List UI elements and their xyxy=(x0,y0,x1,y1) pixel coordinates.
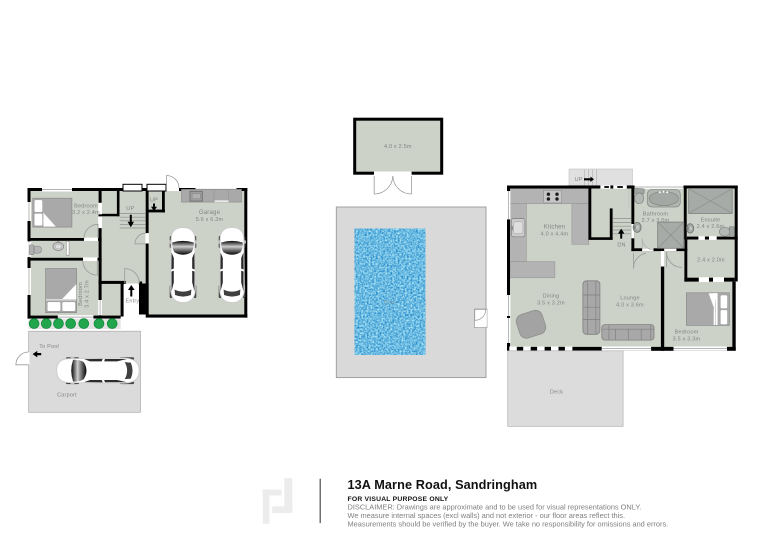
svg-text:Carport: Carport xyxy=(57,392,77,398)
svg-text:Garage: Garage xyxy=(199,210,221,216)
svg-text:Kitchen: Kitchen xyxy=(544,225,565,231)
svg-text:Lounge: Lounge xyxy=(620,296,640,302)
svg-text:UP: UP xyxy=(150,198,158,204)
svg-text:4.0 x 2.5m: 4.0 x 2.5m xyxy=(384,144,412,150)
svg-text:Bedroom: Bedroom xyxy=(78,282,84,306)
svg-text:Measurements should be verifie: Measurements should be verified by the b… xyxy=(348,520,669,529)
svg-text:Entry: Entry xyxy=(125,299,139,305)
svg-text:5.6 x 6.3m: 5.6 x 6.3m xyxy=(196,217,224,223)
svg-text:13A Marne Road, Sandringham: 13A Marne Road, Sandringham xyxy=(348,478,538,492)
svg-text:Bathroom: Bathroom xyxy=(643,212,669,218)
svg-text:Bedroom: Bedroom xyxy=(74,204,98,210)
svg-text:Pool: Pool xyxy=(384,300,396,306)
svg-text:Deck: Deck xyxy=(550,390,563,396)
svg-text:Ensuite: Ensuite xyxy=(701,218,721,224)
svg-text:Bedroom: Bedroom xyxy=(675,330,699,336)
svg-text:3.5 x 3.2m: 3.5 x 3.2m xyxy=(537,301,565,307)
svg-text:3.4 x 2.7m: 3.4 x 2.7m xyxy=(85,280,91,308)
svg-text:Dining: Dining xyxy=(543,294,560,300)
svg-text:To Pool: To Pool xyxy=(39,344,59,350)
svg-text:UP: UP xyxy=(126,206,134,212)
svg-text:DN: DN xyxy=(617,242,625,248)
svg-text:UP: UP xyxy=(575,177,583,183)
svg-text:4.0 x 4.4m: 4.0 x 4.4m xyxy=(541,232,569,238)
svg-text:3.5 x 3.3m: 3.5 x 3.3m xyxy=(673,337,701,343)
svg-text:4.0 x 3.6m: 4.0 x 3.6m xyxy=(616,303,644,309)
svg-text:2.4 x 2.0m: 2.4 x 2.0m xyxy=(697,258,725,264)
svg-text:3.2 x 2.4m: 3.2 x 2.4m xyxy=(72,210,100,216)
